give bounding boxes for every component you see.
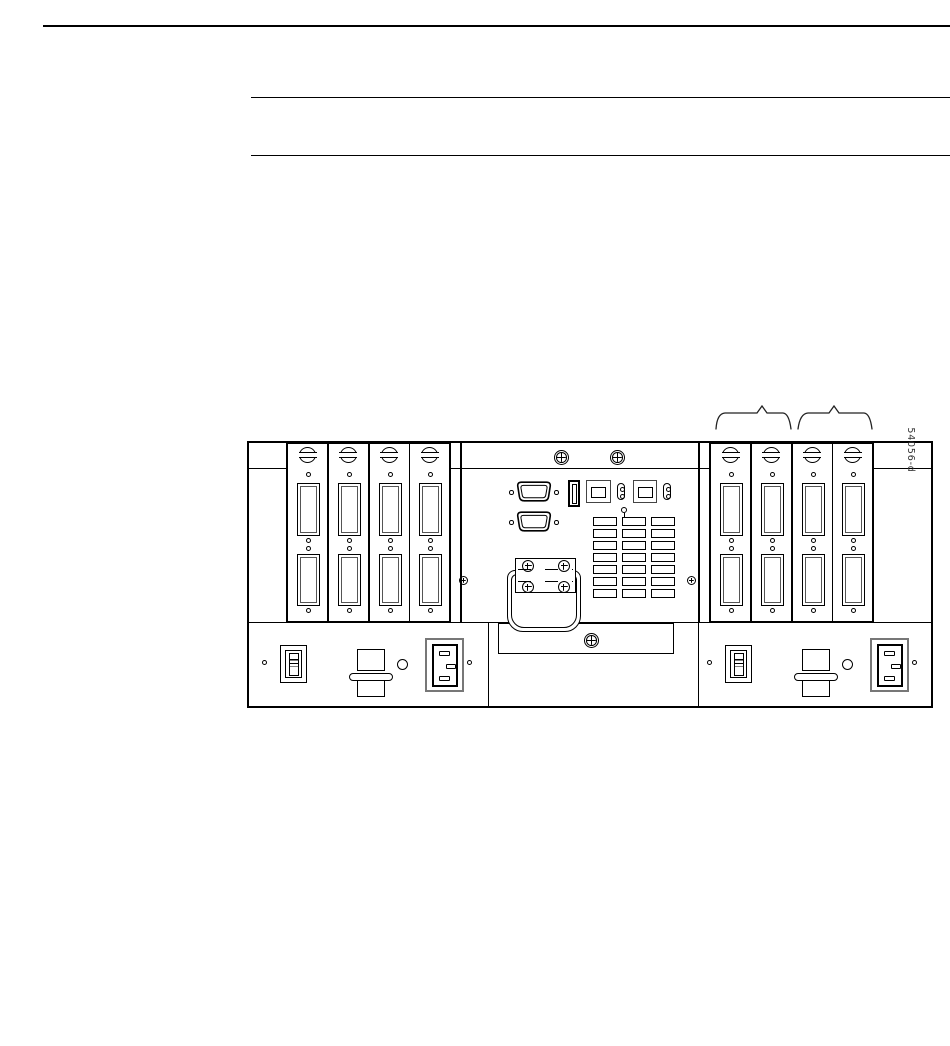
card-hole xyxy=(388,472,393,477)
power-switch-right xyxy=(725,645,752,683)
card-hole xyxy=(770,538,775,543)
connector-port xyxy=(338,554,361,606)
card-hole xyxy=(306,546,311,551)
card-slot-left-2 xyxy=(328,443,369,622)
card-hole xyxy=(306,608,311,613)
card-hole xyxy=(428,546,433,551)
psu-right-divider xyxy=(698,622,699,706)
connector-port xyxy=(379,483,402,536)
thumbscrew-icon xyxy=(340,447,357,463)
plate-screw-icon xyxy=(522,560,534,572)
card-hole xyxy=(770,608,775,613)
card-hole xyxy=(770,472,775,477)
card-hole xyxy=(388,546,393,551)
connector-port xyxy=(720,483,743,536)
card-hole xyxy=(428,608,433,613)
power-inlet-socket xyxy=(432,644,458,687)
filler-strip-left xyxy=(450,443,461,622)
card-group-braces xyxy=(706,402,881,432)
thumbscrew-icon xyxy=(381,447,398,463)
card-slot-left-1 xyxy=(287,443,328,622)
card-hole xyxy=(306,472,311,477)
artwork-number-label: 54056-d xyxy=(902,415,916,485)
connector-port xyxy=(379,554,402,606)
connector-port xyxy=(419,554,442,606)
power-switch-rocker xyxy=(734,653,744,676)
thumbscrew-icon xyxy=(844,447,861,463)
inlet-pin-slot xyxy=(446,664,456,669)
connector-port xyxy=(720,554,743,606)
grouping-brace-right xyxy=(798,406,872,429)
card-hole xyxy=(729,546,734,551)
plate-screw-icon xyxy=(522,581,534,593)
card-hole xyxy=(347,472,352,477)
connector-port xyxy=(297,483,320,536)
card-hole xyxy=(729,608,734,613)
plate-screw-icon xyxy=(558,581,570,593)
inlet-pin-slot xyxy=(884,651,895,656)
artwork-number-text: 54056-d xyxy=(905,427,916,472)
card-hole xyxy=(428,538,433,543)
captive-screw-icon xyxy=(584,633,599,648)
psu-indicator-hole-left xyxy=(397,659,408,670)
card-slot-left-4 xyxy=(409,443,450,622)
end-panel-left xyxy=(249,443,287,622)
thumbscrew-icon xyxy=(804,447,821,463)
card-hole xyxy=(851,608,856,613)
card-hole xyxy=(729,538,734,543)
connector-port xyxy=(842,554,865,606)
card-hole xyxy=(428,472,433,477)
connector-port xyxy=(761,483,784,536)
power-switch-ridges xyxy=(290,659,299,667)
connector-port xyxy=(761,554,784,606)
psu-left-divider xyxy=(488,622,489,706)
chassis-rear-panel: 54056-d xyxy=(247,441,933,708)
card-slot-right-2 xyxy=(751,443,792,622)
filler-strip-right xyxy=(699,443,710,622)
inlet-pin-slot xyxy=(439,676,450,681)
thumbscrew-icon xyxy=(421,447,438,463)
inlet-pin-slot xyxy=(884,676,895,681)
power-switch-bezel xyxy=(285,650,302,678)
card-hole xyxy=(770,546,775,551)
card-slot-right-1 xyxy=(710,443,751,622)
circuit-breaker-stem-right xyxy=(802,680,830,697)
handle-mounting-plate xyxy=(515,558,576,593)
power-inlet-right xyxy=(870,638,909,692)
end-panel-right: 54056-d xyxy=(873,443,931,622)
connector-port xyxy=(297,554,320,606)
circuit-breaker-body-right xyxy=(802,649,830,671)
card-slot-left-3 xyxy=(369,443,410,622)
thumbscrew-icon xyxy=(763,447,780,463)
power-inlet-left xyxy=(425,638,464,692)
thumbscrew-icon xyxy=(299,447,316,463)
inlet-pin-slot xyxy=(439,651,450,656)
psu-mount-hole-right xyxy=(707,660,712,665)
power-switch-left xyxy=(280,645,307,683)
connector-port xyxy=(842,483,865,536)
table-rule-bottom xyxy=(251,155,950,156)
psu-mount-hole-left xyxy=(262,660,267,665)
card-hole xyxy=(347,608,352,613)
psu-indicator-hole-right xyxy=(842,659,853,670)
power-switch-bezel xyxy=(730,650,747,678)
card-hole xyxy=(306,538,311,543)
card-hole xyxy=(811,546,816,551)
connector-port xyxy=(419,483,442,536)
psu-mount-hole-right xyxy=(912,660,917,665)
card-hole xyxy=(729,472,734,477)
inlet-pin-slot xyxy=(891,664,901,669)
card-slot-right-3 xyxy=(792,443,833,622)
page-header-rule xyxy=(43,25,950,27)
document-page: 54056-d xyxy=(0,0,950,1046)
thumbscrew-icon xyxy=(722,447,739,463)
connector-port xyxy=(338,483,361,536)
connector-port xyxy=(802,483,825,536)
power-inlet-socket xyxy=(877,644,903,687)
table-rule-top xyxy=(251,97,950,98)
card-hole xyxy=(851,538,856,543)
card-hole xyxy=(347,538,352,543)
card-hole xyxy=(851,546,856,551)
connector-port xyxy=(802,554,825,606)
card-hole xyxy=(388,538,393,543)
circuit-breaker-stem-left xyxy=(357,680,385,697)
card-hole xyxy=(851,472,856,477)
grouping-brace-left xyxy=(716,406,791,429)
power-switch-ridges xyxy=(735,659,744,667)
card-hole xyxy=(811,538,816,543)
card-hole xyxy=(347,546,352,551)
card-hole xyxy=(388,608,393,613)
card-slot-right-4 xyxy=(832,443,873,622)
psu-mount-hole-left xyxy=(467,660,472,665)
card-hole xyxy=(811,472,816,477)
power-switch-rocker xyxy=(289,653,299,676)
plate-screw-icon xyxy=(558,560,570,572)
circuit-breaker-body-left xyxy=(357,649,385,671)
card-hole xyxy=(811,608,816,613)
